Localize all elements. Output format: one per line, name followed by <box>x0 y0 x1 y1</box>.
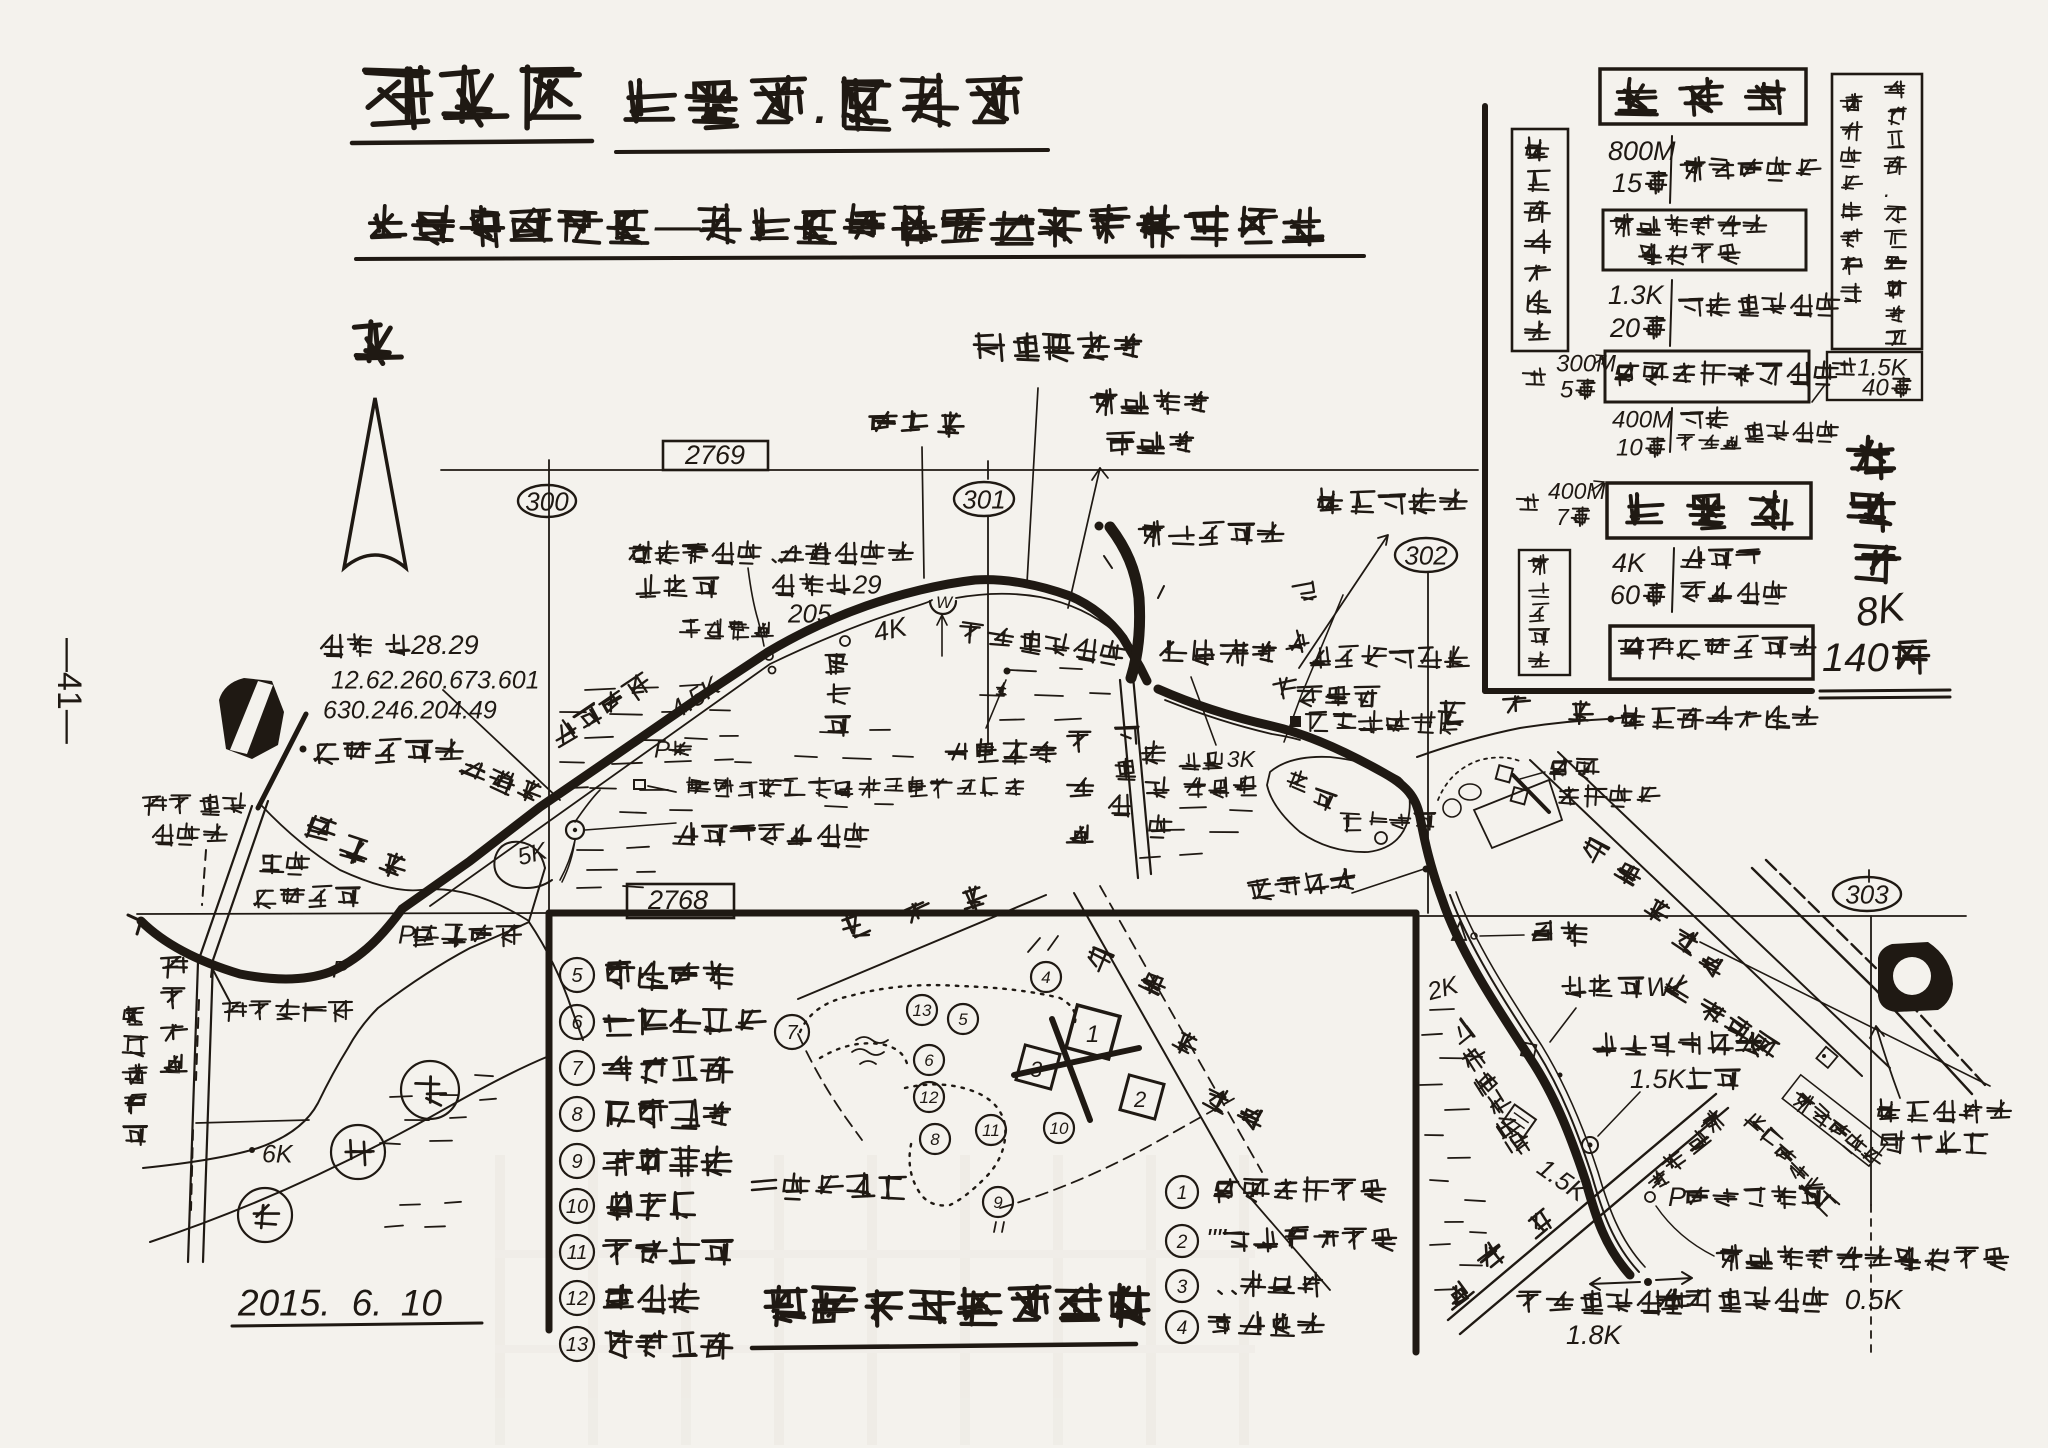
svg-text:12.62.260.673.601: 12.62.260.673.601 <box>331 667 540 695</box>
svg-text:12: 12 <box>566 1288 588 1310</box>
svg-text:4: 4 <box>1177 1318 1188 1339</box>
svg-text:630.246.204.49: 630.246.204.49 <box>323 697 497 725</box>
svg-text:6: 6 <box>571 1012 583 1034</box>
svg-text:2015.: 2015. <box>237 1282 331 1323</box>
svg-text:300: 300 <box>525 486 569 516</box>
svg-text:1.5K: 1.5K <box>1630 1064 1687 1094</box>
svg-text:6K: 6K <box>262 1141 294 1169</box>
svg-text:"": "" <box>1206 1223 1227 1254</box>
svg-text:302: 302 <box>1404 540 1448 570</box>
svg-text:8: 8 <box>571 1104 582 1126</box>
svg-text:10: 10 <box>1616 435 1643 462</box>
svg-text:60: 60 <box>1610 580 1640 610</box>
svg-text:—: — <box>654 199 702 251</box>
svg-text:2: 2 <box>1176 1232 1188 1253</box>
svg-text:29: 29 <box>852 569 882 599</box>
svg-text:P: P <box>332 957 348 984</box>
svg-text:140: 140 <box>1822 636 1889 680</box>
svg-text:400M: 400M <box>1612 407 1672 434</box>
svg-text:6.: 6. <box>352 1282 383 1323</box>
svg-text:.: . <box>813 68 830 137</box>
svg-text:7: 7 <box>786 1022 798 1044</box>
svg-text:5: 5 <box>958 1010 968 1029</box>
svg-text:W: W <box>936 593 954 612</box>
svg-text:9: 9 <box>993 1193 1003 1212</box>
svg-text:2: 2 <box>1133 1087 1146 1112</box>
svg-text:.: . <box>1884 176 1890 202</box>
svg-text:11: 11 <box>567 1242 588 1264</box>
svg-text:3K: 3K <box>1227 746 1257 772</box>
svg-text:13: 13 <box>913 1001 932 1020</box>
svg-text:4K: 4K <box>1612 548 1646 578</box>
svg-text:10: 10 <box>401 1282 443 1323</box>
svg-text:7: 7 <box>571 1058 583 1080</box>
svg-text:300M: 300M <box>1556 351 1616 378</box>
svg-text:8: 8 <box>930 1130 940 1149</box>
svg-text:15: 15 <box>1612 168 1643 198</box>
svg-text:303: 303 <box>1845 879 1889 909</box>
svg-text:40: 40 <box>1862 375 1889 402</box>
svg-text:20: 20 <box>1609 313 1640 343</box>
svg-text:W: W <box>1646 972 1674 1002</box>
svg-text:—41—: —41— <box>50 638 88 744</box>
svg-text:10: 10 <box>1050 1119 1069 1138</box>
svg-text:2769: 2769 <box>684 440 745 470</box>
svg-text:1: 1 <box>1086 1021 1099 1048</box>
svg-text:8K: 8K <box>1853 585 1910 636</box>
svg-text:4: 4 <box>1041 968 1050 987</box>
svg-text:1.3K: 1.3K <box>1608 280 1665 310</box>
svg-text:1: 1 <box>1177 1183 1188 1204</box>
svg-text:205: 205 <box>787 598 832 628</box>
svg-text:0.5K: 0.5K <box>1845 1284 1904 1315</box>
svg-text:11: 11 <box>982 1121 1000 1140</box>
svg-text:1.8K: 1.8K <box>1566 1320 1623 1350</box>
svg-text:9: 9 <box>571 1151 582 1173</box>
svg-text:6: 6 <box>924 1051 934 1070</box>
svg-text:5: 5 <box>1560 377 1574 404</box>
svg-text:P: P <box>1668 1182 1686 1212</box>
svg-text:28.29: 28.29 <box>410 630 479 660</box>
svg-text:301: 301 <box>962 484 1005 514</box>
svg-text:3: 3 <box>1177 1277 1188 1298</box>
svg-text:13: 13 <box>566 1334 588 1356</box>
svg-text:10: 10 <box>566 1196 588 1218</box>
svg-text:7: 7 <box>1556 504 1570 530</box>
svg-text:12: 12 <box>920 1088 939 1107</box>
svg-text:800M: 800M <box>1608 136 1676 166</box>
svg-text:5: 5 <box>571 965 583 987</box>
